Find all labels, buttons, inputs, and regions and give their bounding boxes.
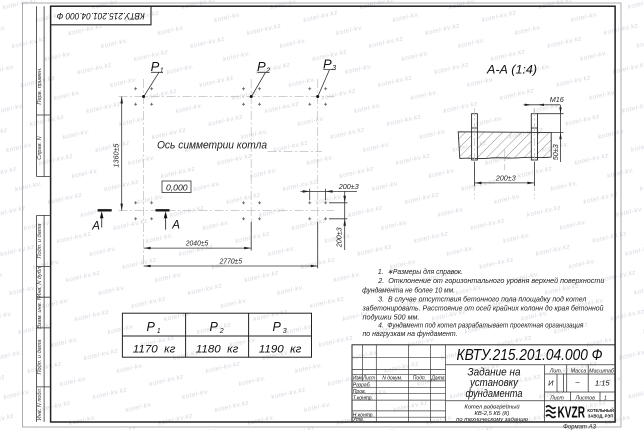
svg-text:Масса: Масса [571,369,587,375]
svg-text:Дата: Дата [430,376,444,382]
svg-text:P: P [257,59,266,74]
svg-text:фундамента: фундамента [466,388,523,400]
svg-text:1. ∗Размеры для справок.: 1. ∗Размеры для справок. [378,267,463,276]
svg-text:КВ-2,5 КБ (К): КВ-2,5 КБ (К) [475,411,510,417]
svg-text:KVZR: KVZR [558,404,586,421]
svg-text:2770±5: 2770±5 [219,257,243,266]
svg-text:–: – [574,378,580,387]
svg-text:по нагрузкам на фундамент.: по нагрузкам на фундамент. [363,329,458,338]
svg-text:Справ. N: Справ. N [37,135,43,159]
svg-text:200±3: 200±3 [338,182,359,191]
svg-text:фундамента не более 10 мм.: фундамента не более 10 мм. [362,285,455,294]
svg-text:P: P [147,320,156,334]
svg-text:N докум.: N докум. [382,376,402,382]
svg-text:Инв. N подл.: Инв. N подл. [37,388,43,421]
svg-text:1170 кг: 1170 кг [133,344,176,356]
svg-text:1:15: 1:15 [595,378,610,387]
svg-text:А-А (1:4): А-А (1:4) [486,65,537,77]
svg-text:Пров.: Пров. [353,389,366,395]
svg-text:КВТУ.215.201.04.000 Ф: КВТУ.215.201.04.000 Ф [457,347,603,364]
svg-text:М16: М16 [550,95,564,104]
svg-text:ЗАВОД, РЭП: ЗАВОД, РЭП [588,413,614,419]
svg-text:50±3: 50±3 [551,144,560,160]
svg-text:200±3: 200±3 [495,174,516,183]
svg-text:И: И [548,379,554,388]
svg-text:Подп. и дата: Подп. и дата [37,339,43,374]
svg-text:Формат А3: Формат А3 [563,424,596,430]
svg-text:200±3: 200±3 [335,227,344,248]
svg-text:Изм.Лист: Изм.Лист [353,376,375,382]
svg-text:Листов: Листов [575,395,596,401]
svg-text:Разраб.: Разраб. [353,383,371,389]
svg-text:Перв. примен.: Перв. примен. [37,67,43,104]
svg-text:1: 1 [157,328,161,335]
svg-text:1: 1 [160,68,164,75]
svg-text:Взам. инв. N: Взам. инв. N [37,295,43,329]
svg-text:по техническому заданию: по техническому заданию [456,417,528,423]
svg-text:P: P [151,59,160,74]
svg-text:Котел водогрейный: Котел водогрейный [464,403,520,410]
svg-text:0,000: 0,000 [166,182,188,192]
svg-text:1190 кг: 1190 кг [259,344,302,356]
svg-text:Инв. N дубл.: Инв. N дубл. [37,265,43,297]
svg-text:1: 1 [604,395,607,401]
svg-text:P: P [323,56,332,71]
svg-text:Масштаб: Масштаб [589,369,615,375]
svg-text:1180 кг: 1180 кг [196,344,239,356]
svg-text:Лит.: Лит. [549,369,562,375]
svg-text:2. Отклонение от горизонтальн: 2. Отклонение от горизонтального уровня … [377,276,604,285]
svg-text:2: 2 [219,328,224,335]
svg-text:1360±5: 1360±5 [112,143,121,168]
svg-text:Ось симметрии котла: Ось симметрии котла [157,140,267,152]
svg-text:P: P [273,320,282,334]
svg-text:3. В случае отсутствия бетонн: 3. В случае отсутствия бетонного пола пл… [378,294,586,303]
svg-text:А: А [171,219,180,231]
svg-text:P: P [210,320,219,334]
svg-text:2040±5: 2040±5 [185,239,209,248]
svg-text:А: А [91,220,100,232]
svg-text:3: 3 [332,65,336,72]
svg-text:Подп. и дата: Подп. и дата [37,223,43,258]
svg-text:Подп.: Подп. [413,376,426,382]
svg-text:2: 2 [265,68,270,75]
svg-text:3: 3 [283,328,287,335]
svg-text:Лист: Лист [549,395,564,401]
svg-text:Т.контр.: Т.контр. [353,395,373,401]
svg-text:Утв.: Утв. [353,417,364,423]
svg-text:забетонировать. Расстояние от: забетонировать. Расстояние от осей крайн… [362,304,604,313]
svg-text:КВТУ.215.201.04.000 Ф: КВТУ.215.201.04.000 Ф [57,11,145,21]
